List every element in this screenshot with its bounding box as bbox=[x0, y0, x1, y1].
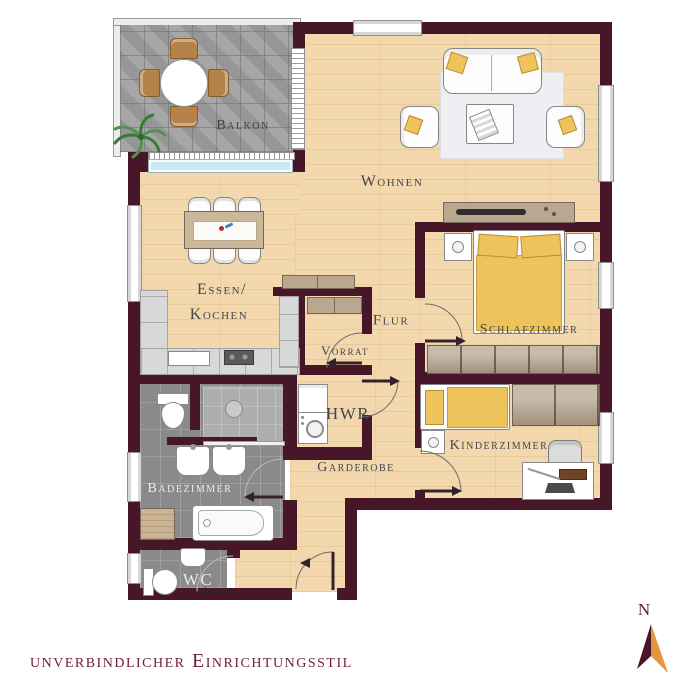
wall-corridor-right bbox=[345, 510, 357, 600]
window-bath-left bbox=[127, 452, 142, 502]
kitchen-sink bbox=[168, 351, 210, 366]
window-wc-left bbox=[127, 553, 142, 584]
wall-hall-bedroom-2 bbox=[415, 343, 425, 372]
bath-sink bbox=[176, 446, 210, 476]
double-bed bbox=[473, 230, 565, 334]
bedroom-wardrobe bbox=[427, 345, 600, 374]
childroom-wardrobe bbox=[512, 384, 600, 426]
disclaimer-caption: unverbindlicher Einrichtungsstil bbox=[30, 650, 353, 673]
desk-shelf bbox=[559, 469, 587, 480]
pantry-shelf bbox=[307, 297, 362, 314]
bed-pillow bbox=[477, 234, 518, 259]
balcony-chair bbox=[170, 106, 198, 127]
room-label-garderobe: Garderobe bbox=[317, 460, 395, 476]
bathtub bbox=[192, 505, 274, 541]
window-dining-left bbox=[127, 205, 142, 302]
kitchen-stove bbox=[224, 350, 254, 365]
kitchen-counter-bottom bbox=[140, 348, 300, 375]
wall-wc-east-2 bbox=[227, 590, 240, 600]
dining-table bbox=[184, 211, 264, 249]
floor-plan: Balkon Wohnen Essen/ Kochen Flur Vorrat … bbox=[0, 0, 700, 700]
bed-pillow bbox=[520, 234, 561, 259]
wall-bath-stub-v bbox=[190, 384, 200, 430]
desk bbox=[522, 462, 594, 500]
coffee-table bbox=[466, 104, 514, 144]
compass-north-label: N bbox=[631, 600, 657, 620]
room-label-flur: Flur bbox=[373, 313, 409, 330]
room-label-schlafzimmer: Schlafzimmer bbox=[480, 322, 579, 338]
wall-wc-east-1 bbox=[227, 538, 240, 558]
hwr-counter bbox=[298, 384, 328, 414]
tv-sideboard bbox=[443, 202, 575, 223]
nightstand bbox=[444, 233, 472, 261]
balcony-chair bbox=[139, 69, 160, 97]
window-childroom-right bbox=[598, 412, 614, 464]
books bbox=[469, 109, 499, 141]
wall-right-3 bbox=[600, 307, 612, 412]
table-decoration bbox=[219, 226, 224, 231]
bed-duvet bbox=[447, 387, 508, 428]
single-bed bbox=[420, 384, 510, 430]
kitchen-window-band bbox=[148, 159, 293, 173]
bedside-lamp bbox=[421, 430, 445, 454]
room-label-vorrat: Vorrat bbox=[321, 343, 369, 359]
balcony-door-window bbox=[291, 48, 305, 150]
wc-sink bbox=[180, 548, 206, 567]
window-living-top bbox=[353, 20, 422, 36]
room-label-badezimmer: Badezimmer bbox=[148, 481, 233, 497]
wall-bottom-2 bbox=[337, 588, 357, 600]
compass-needle-icon bbox=[637, 624, 668, 673]
balcony-chair bbox=[208, 69, 229, 97]
wall-left-2 bbox=[128, 155, 140, 205]
hall-sideboard bbox=[282, 275, 355, 289]
room-label-essen: Essen/ bbox=[197, 281, 247, 299]
wall-top bbox=[293, 22, 612, 34]
wall-hwr-south bbox=[297, 447, 372, 460]
window-living-right bbox=[598, 85, 614, 182]
bed-duvet bbox=[476, 255, 562, 331]
floor-entry3 bbox=[290, 498, 350, 592]
keyboard bbox=[545, 483, 575, 493]
room-label-balkon: Balkon bbox=[216, 118, 269, 134]
wall-right-2 bbox=[600, 180, 612, 262]
window-bedroom-right bbox=[598, 262, 614, 309]
kitchen-counter-left bbox=[140, 290, 168, 350]
kitchen-counter-east bbox=[279, 296, 299, 368]
wall-childroom-west-2 bbox=[415, 490, 425, 498]
room-label-wc: WC bbox=[183, 570, 213, 590]
room-label-kochen: Kochen bbox=[190, 306, 248, 324]
washing-machine bbox=[298, 412, 328, 444]
wc-toilet-bowl bbox=[152, 569, 178, 595]
wall-left-5 bbox=[128, 582, 140, 600]
shower-head bbox=[225, 400, 243, 418]
wall-pantry-south bbox=[297, 365, 372, 375]
room-label-hwr: HWR bbox=[326, 404, 370, 424]
bath-mat bbox=[140, 508, 175, 540]
wall-right-1 bbox=[600, 34, 612, 85]
bed-pillow bbox=[425, 390, 444, 425]
tv bbox=[456, 209, 526, 215]
wall-bath-east-1 bbox=[283, 384, 297, 460]
nightstand bbox=[566, 233, 594, 261]
shower-area bbox=[203, 386, 283, 443]
wall-pantry-east bbox=[362, 296, 372, 334]
balcony-table bbox=[160, 59, 208, 107]
balcony-chair bbox=[170, 38, 198, 59]
room-label-wohnen: Wohnen bbox=[361, 173, 424, 191]
room-label-kinderzimmer: Kinderzimmer bbox=[450, 438, 549, 454]
wall-hall-bedroom-1 bbox=[415, 222, 425, 298]
bath-sink bbox=[212, 446, 246, 476]
